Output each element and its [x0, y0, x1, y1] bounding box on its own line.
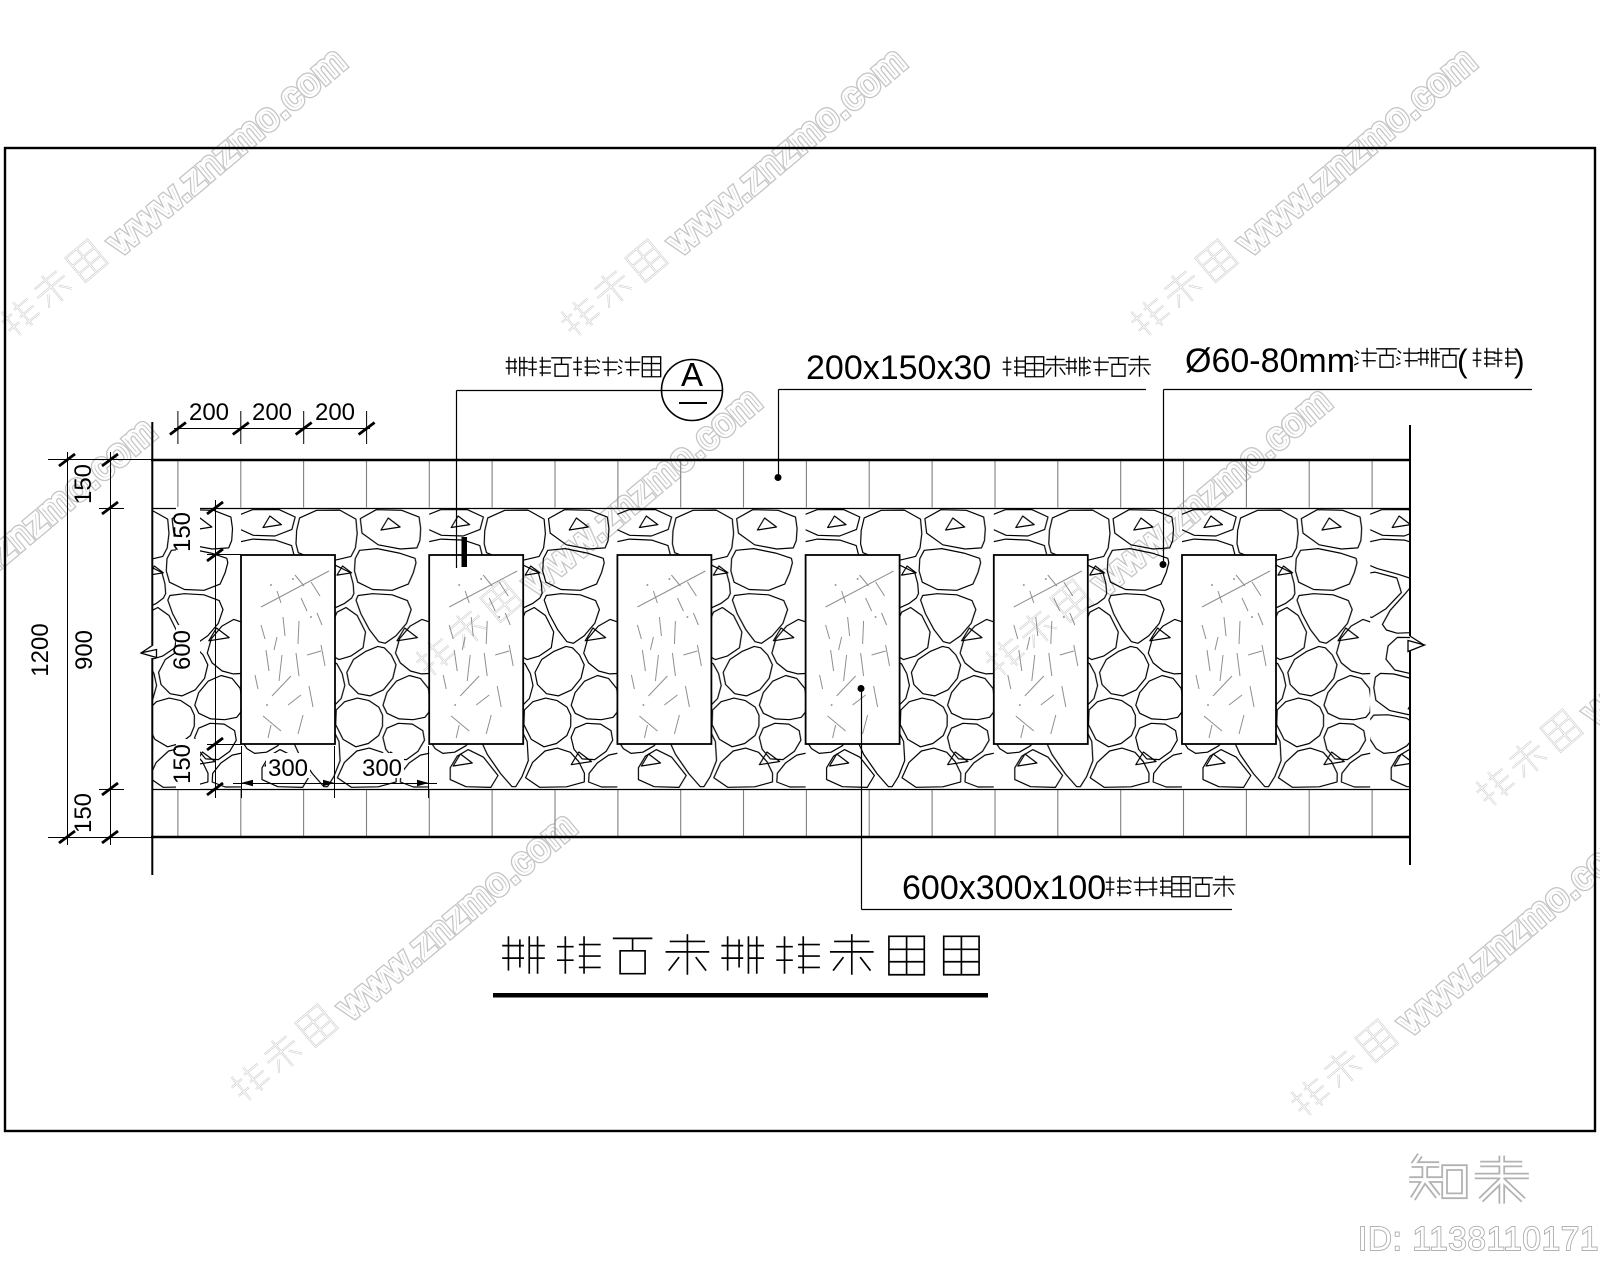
svg-text:600x300x100: 600x300x100	[902, 869, 1106, 907]
svg-text:150: 150	[169, 744, 196, 784]
svg-text:150: 150	[70, 464, 97, 504]
svg-text:300: 300	[362, 755, 402, 782]
svg-text:200: 200	[252, 399, 292, 426]
svg-text:(: (	[1457, 343, 1468, 379]
svg-text:200: 200	[189, 399, 229, 426]
svg-text:ID: 1138110171: ID: 1138110171	[1358, 1220, 1599, 1257]
svg-text:150: 150	[70, 793, 97, 833]
svg-text:900: 900	[71, 630, 98, 670]
svg-text:150: 150	[169, 512, 196, 552]
svg-text:): )	[1514, 343, 1525, 379]
svg-text:Ø60-80mm: Ø60-80mm	[1185, 342, 1355, 380]
svg-text:600: 600	[169, 630, 196, 670]
svg-text:300: 300	[268, 755, 308, 782]
svg-text:1200: 1200	[27, 623, 54, 676]
svg-text:200x150x30: 200x150x30	[806, 349, 991, 387]
svg-text:A: A	[681, 356, 703, 393]
svg-text:200: 200	[315, 399, 355, 426]
